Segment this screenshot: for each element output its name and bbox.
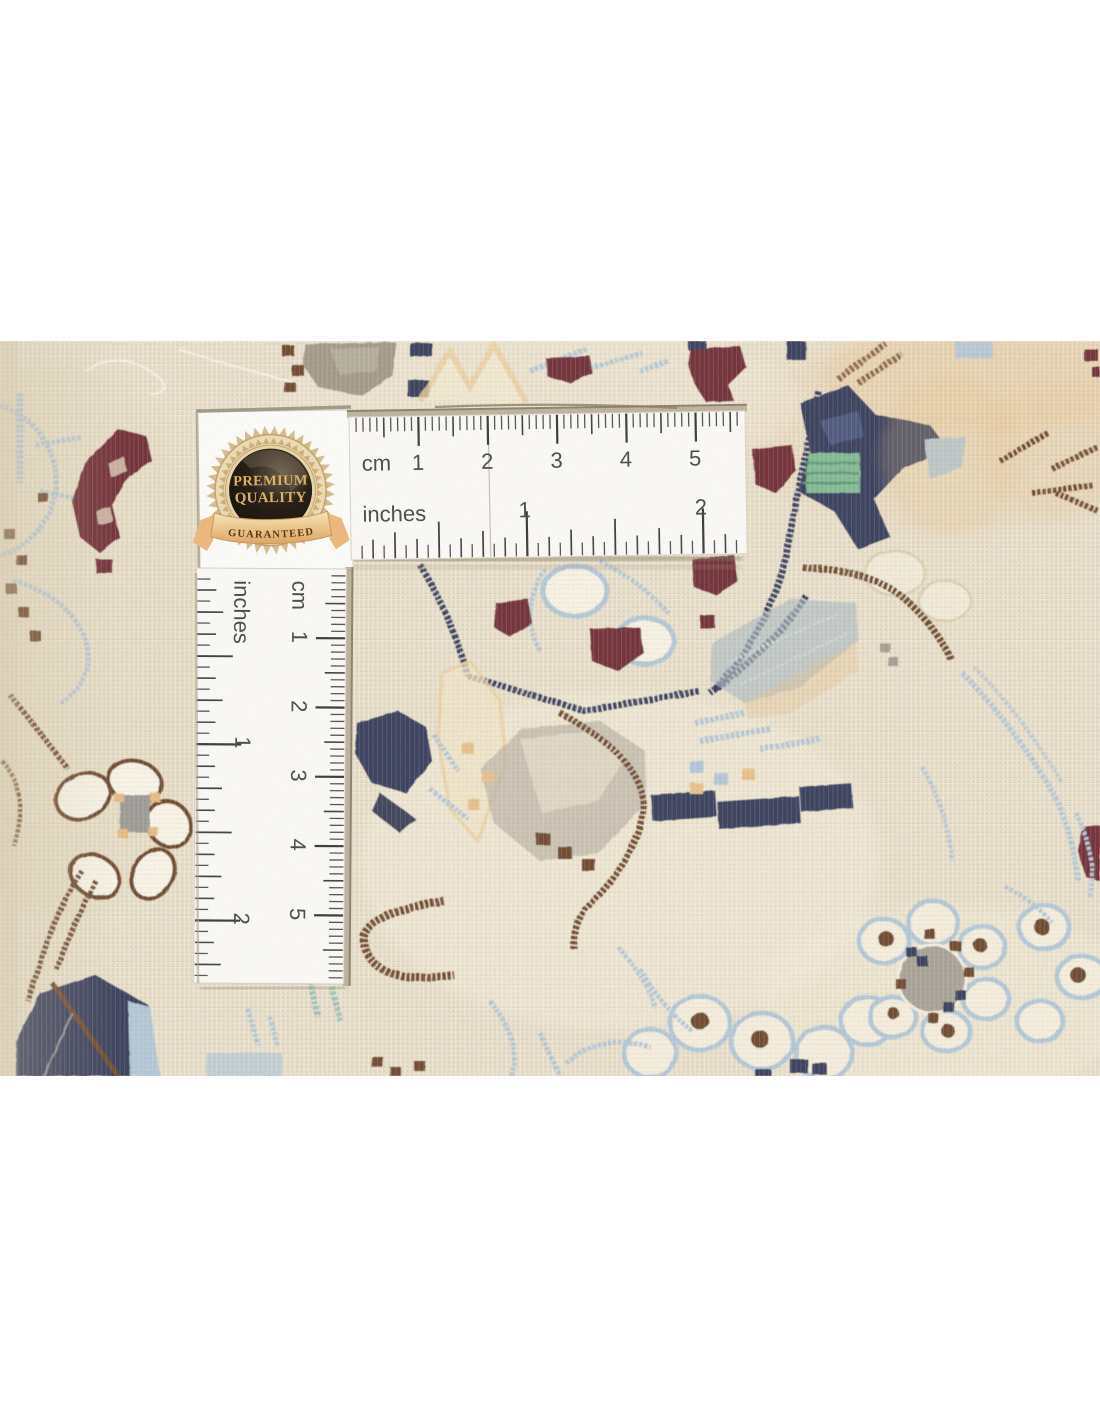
svg-text:3: 3 [550,448,563,473]
svg-text:2: 2 [229,912,254,924]
svg-text:2: 2 [286,700,311,712]
svg-text:3: 3 [286,769,311,781]
svg-text:QUALITY: QUALITY [235,490,307,507]
svg-text:1: 1 [518,497,531,522]
svg-text:2: 2 [481,449,494,474]
svg-text:5: 5 [689,445,702,470]
svg-text:5: 5 [285,908,310,920]
svg-text:1: 1 [412,450,425,475]
svg-text:1: 1 [287,631,312,643]
svg-text:4: 4 [620,447,633,472]
svg-text:inches: inches [362,501,426,527]
svg-text:cm: cm [287,581,312,611]
svg-text:1: 1 [230,736,255,748]
svg-text:cm: cm [362,450,392,475]
svg-text:inches: inches [229,580,254,644]
svg-text:PREMIUM: PREMIUM [233,473,308,490]
svg-text:4: 4 [286,839,311,851]
svg-text:2: 2 [695,494,708,519]
